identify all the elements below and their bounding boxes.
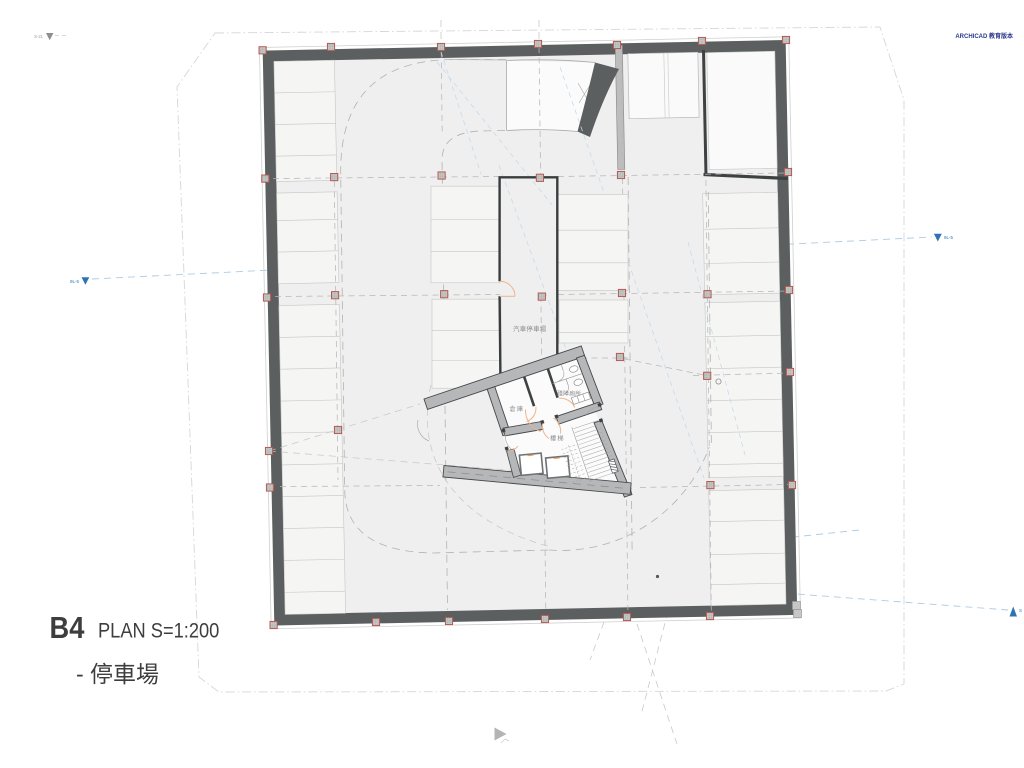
svg-text:PLAN S=1:200: PLAN S=1:200: [98, 619, 219, 643]
svg-text:9L-5: 9L-5: [70, 279, 80, 284]
svg-text:倉庫: 倉庫: [510, 405, 525, 413]
svg-text:ARCHICAD 教育版本: ARCHICAD 教育版本: [955, 32, 1014, 40]
svg-text:S-21: S-21: [34, 34, 44, 39]
svg-text:汽車停車場: 汽車停車場: [513, 324, 547, 333]
svg-text:樓梯: 樓梯: [550, 435, 565, 443]
svg-text:B4: B4: [50, 611, 86, 645]
svg-text:- 停車場: - 停車場: [76, 661, 159, 687]
svg-text:S: S: [1019, 608, 1022, 613]
svg-text:9L-5: 9L-5: [944, 235, 954, 240]
svg-text:殘障廁所: 殘障廁所: [557, 390, 581, 398]
